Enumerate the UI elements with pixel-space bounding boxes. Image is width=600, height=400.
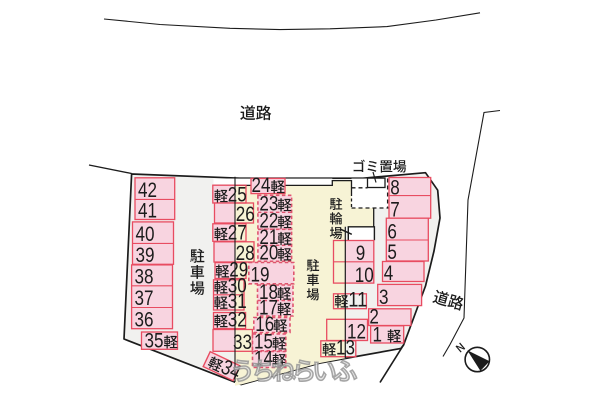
svg-text:40: 40 — [136, 223, 155, 246]
svg-text:36: 36 — [135, 309, 154, 332]
svg-text:26: 26 — [236, 203, 255, 226]
svg-text:38: 38 — [135, 266, 154, 289]
svg-text:9: 9 — [356, 242, 366, 265]
svg-text:41: 41 — [138, 199, 157, 222]
svg-text:8: 8 — [390, 176, 400, 199]
svg-text:3: 3 — [379, 286, 389, 309]
svg-text:39: 39 — [136, 244, 155, 267]
svg-text:20: 20 — [259, 242, 278, 265]
svg-text:1: 1 — [373, 323, 383, 346]
svg-text:7: 7 — [390, 199, 400, 222]
svg-text:28: 28 — [236, 242, 255, 265]
svg-text:4: 4 — [384, 262, 394, 285]
svg-text:11: 11 — [348, 289, 367, 312]
svg-text:13: 13 — [336, 337, 355, 360]
svg-text:33: 33 — [233, 331, 252, 354]
svg-text:19: 19 — [251, 263, 270, 286]
svg-text:35: 35 — [145, 329, 164, 352]
svg-text:5: 5 — [387, 241, 397, 264]
svg-text:32: 32 — [228, 308, 247, 331]
svg-text:37: 37 — [135, 287, 154, 310]
svg-text:6: 6 — [387, 220, 397, 243]
svg-text:10: 10 — [355, 264, 374, 287]
